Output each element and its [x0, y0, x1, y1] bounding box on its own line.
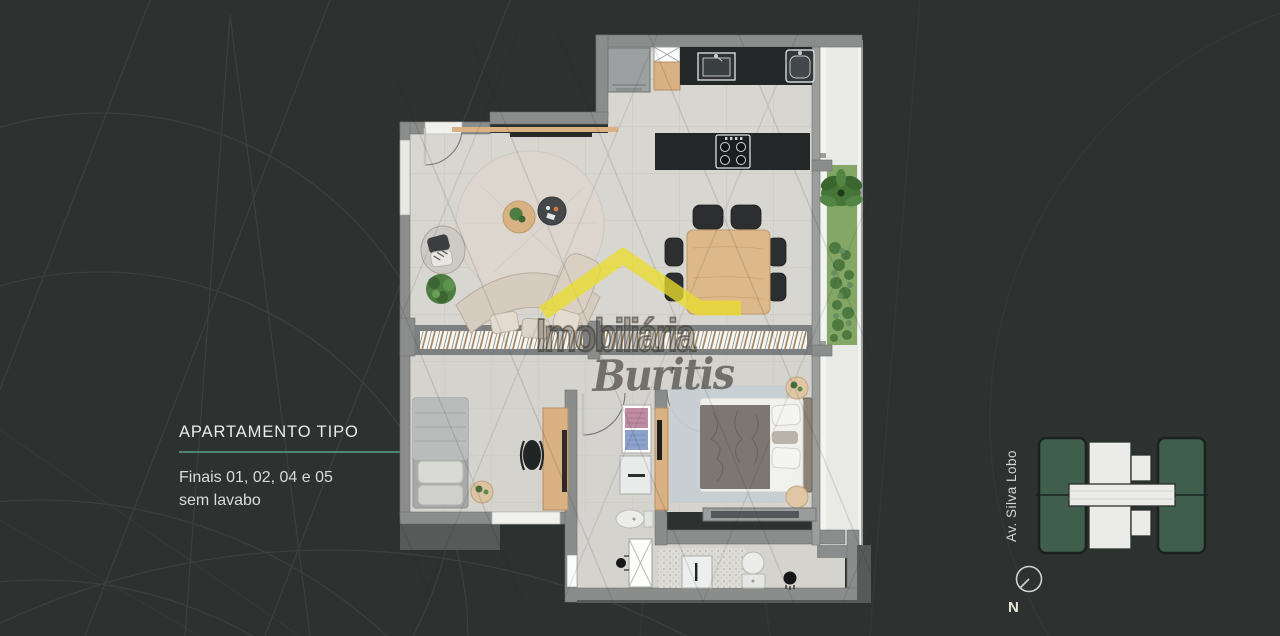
compass: N: [1004, 560, 1054, 620]
plan-subtitle-line1: Finais 01, 02, 04 e 05: [179, 466, 409, 489]
poster-canvas: Imobiliária Buritis APARTAMENTO TIPO Fin…: [0, 0, 1280, 636]
sink-2: [786, 50, 814, 82]
shower-drain: [784, 572, 797, 591]
toilet: [742, 552, 765, 588]
plan-subtitle-line2: sem lavabo: [179, 489, 409, 512]
toilet: [616, 510, 644, 528]
info-panel: APARTAMENTO TIPO Finais 01, 02, 04 e 05 …: [179, 423, 409, 512]
brand-script: Buritis: [592, 349, 734, 402]
nightstand: [786, 486, 808, 508]
title-divider: [179, 451, 400, 453]
north-label: N: [1008, 599, 1019, 616]
balcony: [817, 40, 865, 558]
site-plan: [1036, 434, 1208, 559]
nightstand: [786, 377, 808, 399]
street-label: Av. Silva Lobo: [1004, 437, 1030, 555]
armchair: [421, 226, 465, 274]
plan-title: APARTAMENTO TIPO: [179, 423, 409, 442]
floor-plant: [426, 274, 456, 304]
compass-icon: [1017, 567, 1042, 592]
sink-1: [698, 53, 735, 80]
